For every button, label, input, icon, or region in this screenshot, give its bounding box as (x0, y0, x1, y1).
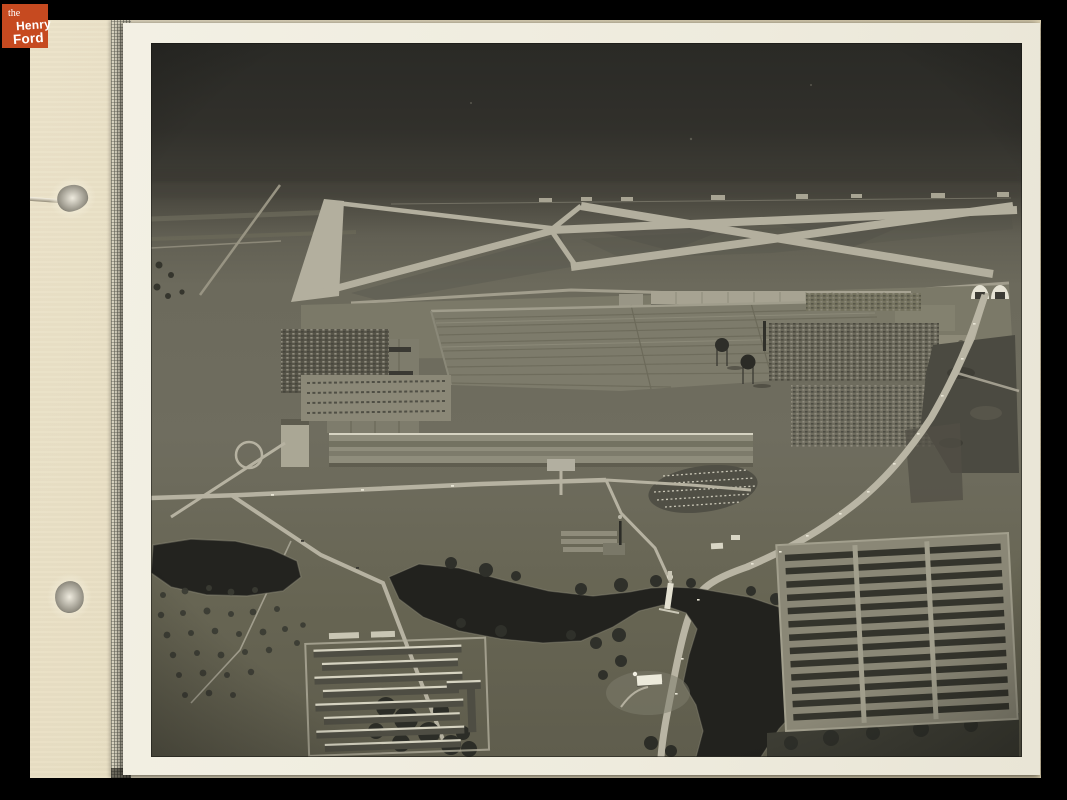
punch-hole-top (54, 182, 90, 215)
scanned-album-page: the Henry Ford (0, 0, 1067, 800)
henry-ford-logo: the Henry Ford (2, 4, 48, 48)
aerial-photo-image (151, 43, 1022, 757)
photograph-print (123, 23, 1040, 775)
logo-word-ford: Ford (13, 31, 45, 47)
vignette (151, 43, 1022, 757)
logo-word-the: the (8, 9, 20, 19)
punch-hole-bottom (53, 579, 86, 615)
